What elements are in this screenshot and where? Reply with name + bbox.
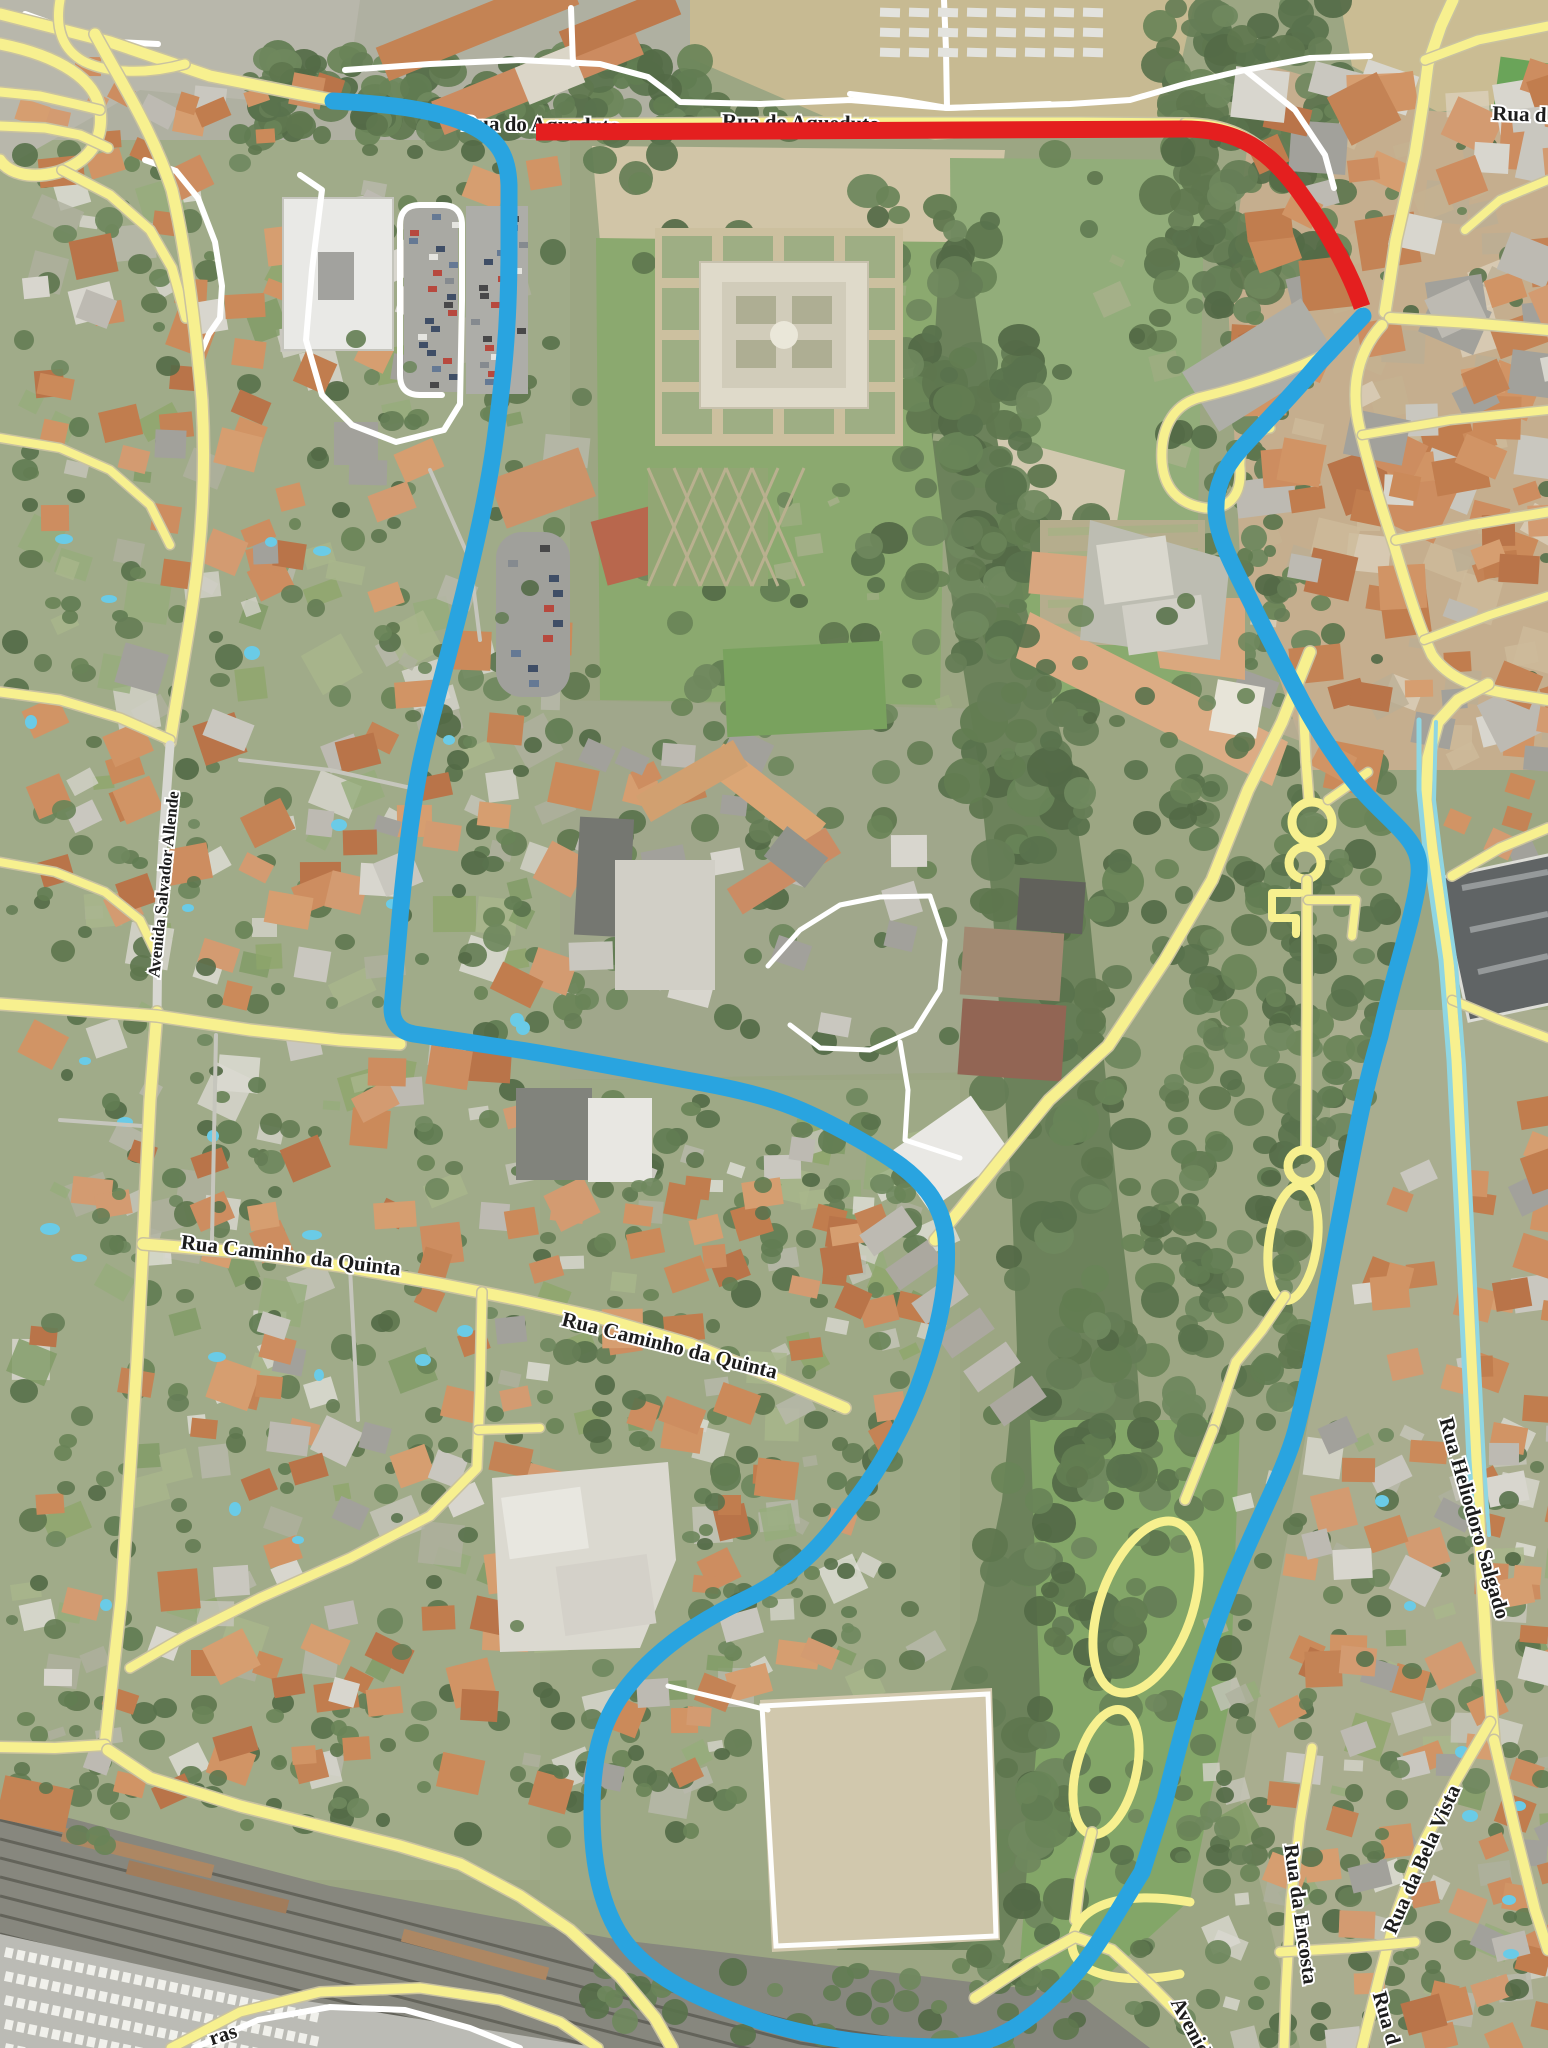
svg-text:Rua d: Rua d [1492, 101, 1547, 127]
